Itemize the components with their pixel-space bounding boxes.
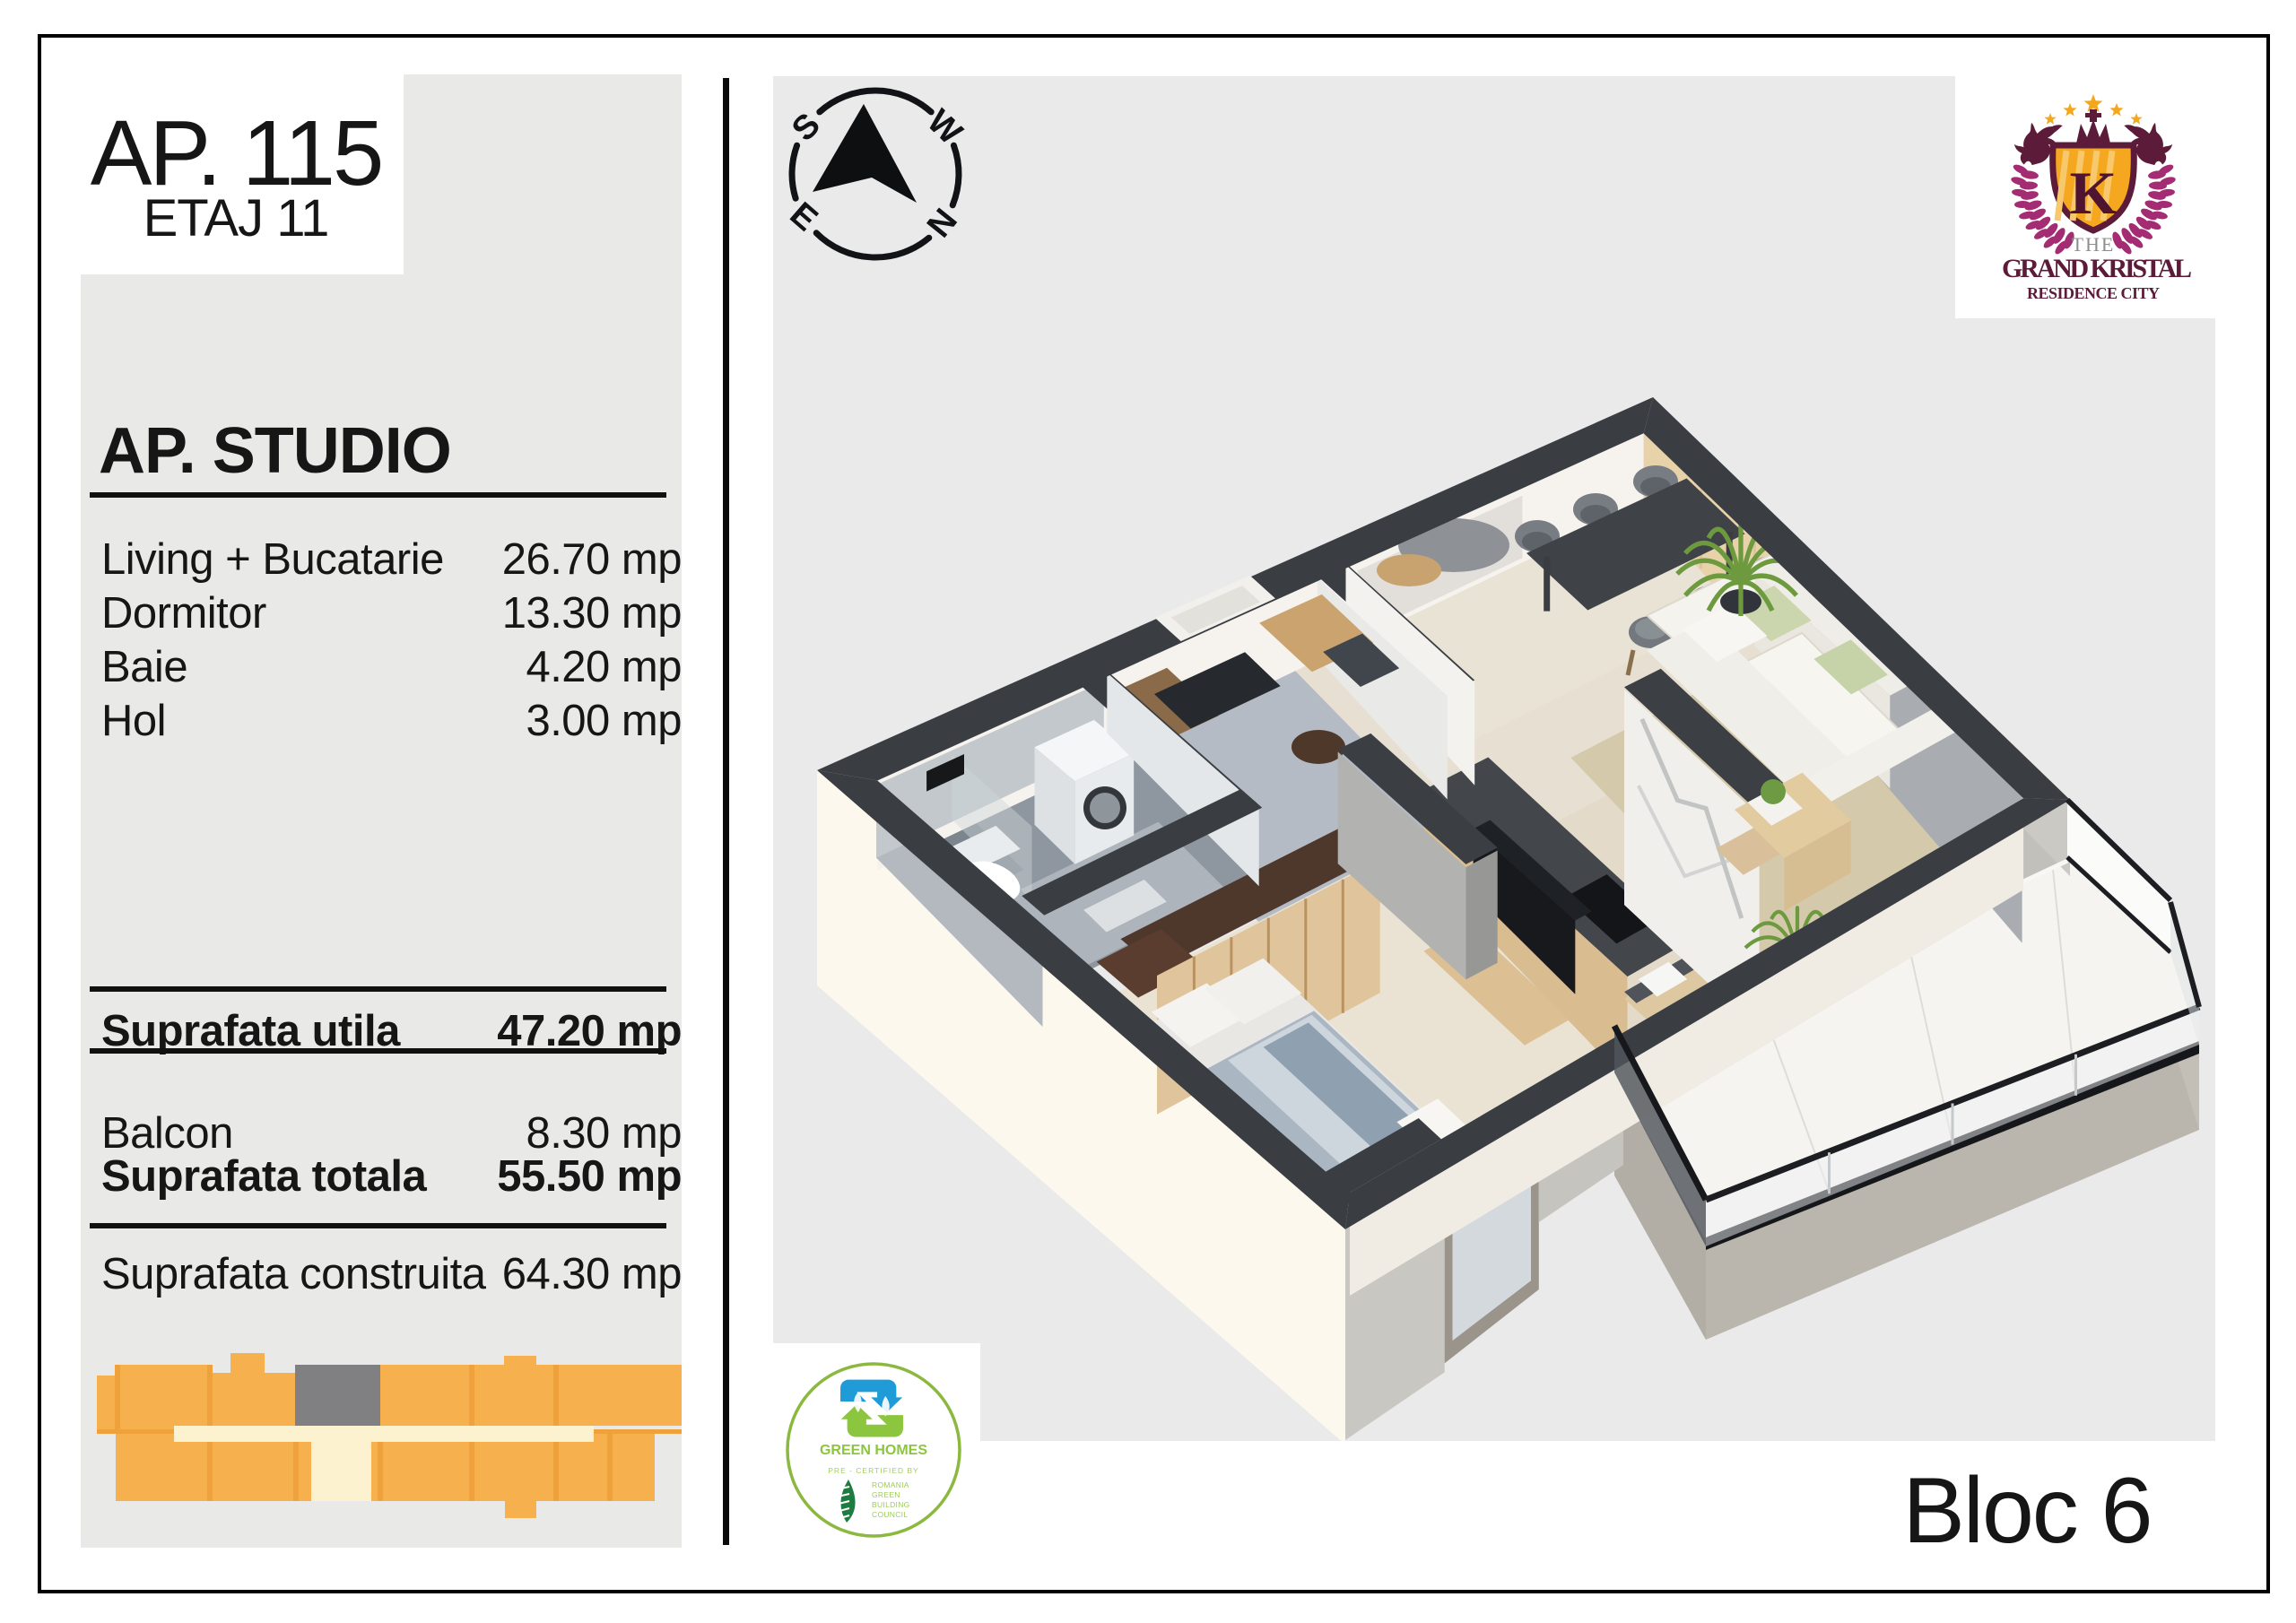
svg-text:GRAND KRISTAL: GRAND KRISTAL: [2002, 254, 2192, 283]
svg-text:ROMANIA: ROMANIA: [872, 1480, 909, 1489]
svg-text:THE: THE: [2072, 233, 2116, 256]
svg-text:K: K: [2070, 159, 2118, 227]
svg-text:PRE - CERTIFIED BY: PRE - CERTIFIED BY: [828, 1466, 918, 1475]
svg-text:GREEN: GREEN: [872, 1490, 900, 1499]
svg-text:COUNCIL: COUNCIL: [872, 1510, 908, 1519]
svg-text:BUILDING: BUILDING: [872, 1500, 910, 1509]
svg-text:RESIDENCE CITY: RESIDENCE CITY: [2027, 284, 2160, 302]
svg-text:GREEN HOMES: GREEN HOMES: [820, 1443, 927, 1458]
